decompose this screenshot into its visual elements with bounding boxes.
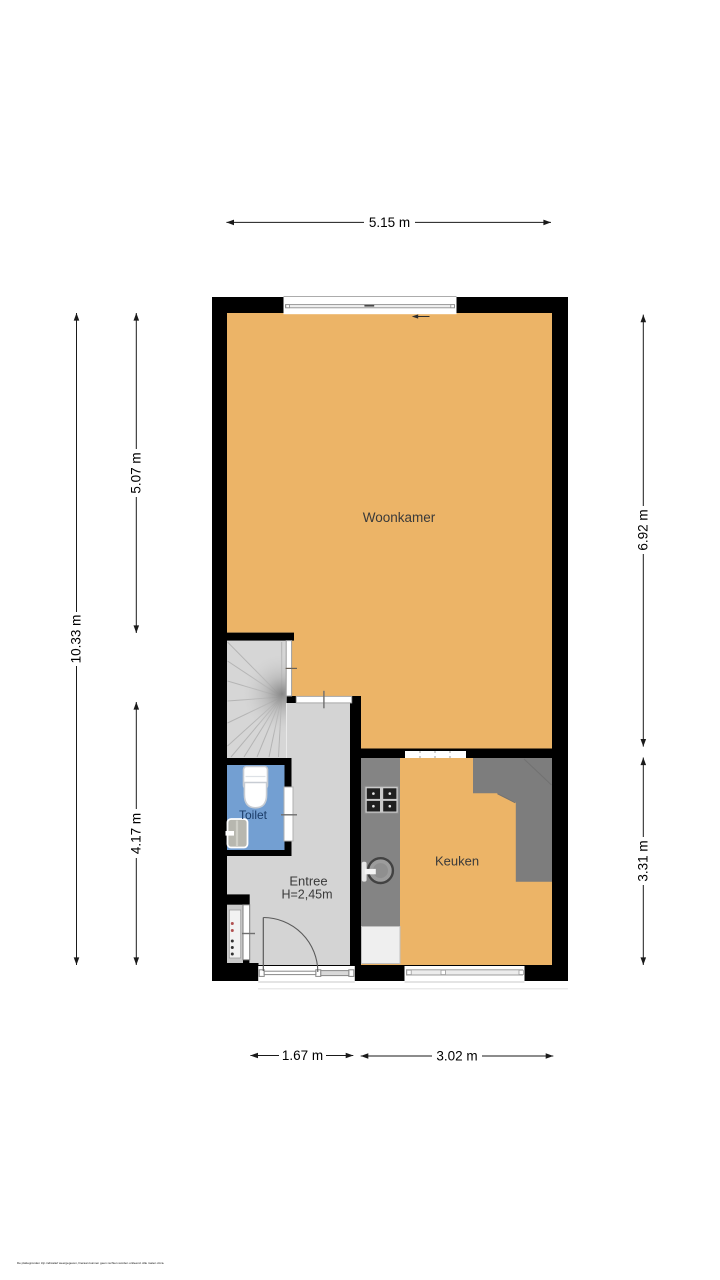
- svg-text:H=2,45m: H=2,45m: [281, 888, 332, 902]
- svg-text:10.33 m: 10.33 m: [69, 615, 84, 664]
- svg-text:De plattegronden zijn indicati: De plattegronden zijn indicatief weergeg…: [17, 1261, 164, 1265]
- svg-text:Entree: Entree: [289, 874, 327, 889]
- svg-text:5.15 m: 5.15 m: [369, 215, 410, 230]
- svg-text:Toilet: Toilet: [239, 808, 268, 822]
- svg-text:1.67 m: 1.67 m: [282, 1048, 323, 1063]
- svg-text:6.92 m: 6.92 m: [636, 509, 651, 550]
- svg-text:3.31 m: 3.31 m: [636, 840, 651, 881]
- svg-text:Keuken: Keuken: [435, 854, 479, 869]
- svg-text:5.07 m: 5.07 m: [129, 452, 144, 493]
- svg-text:4.17 m: 4.17 m: [129, 813, 144, 854]
- svg-text:3.02 m: 3.02 m: [436, 1049, 477, 1064]
- svg-text:Woonkamer: Woonkamer: [363, 510, 436, 525]
